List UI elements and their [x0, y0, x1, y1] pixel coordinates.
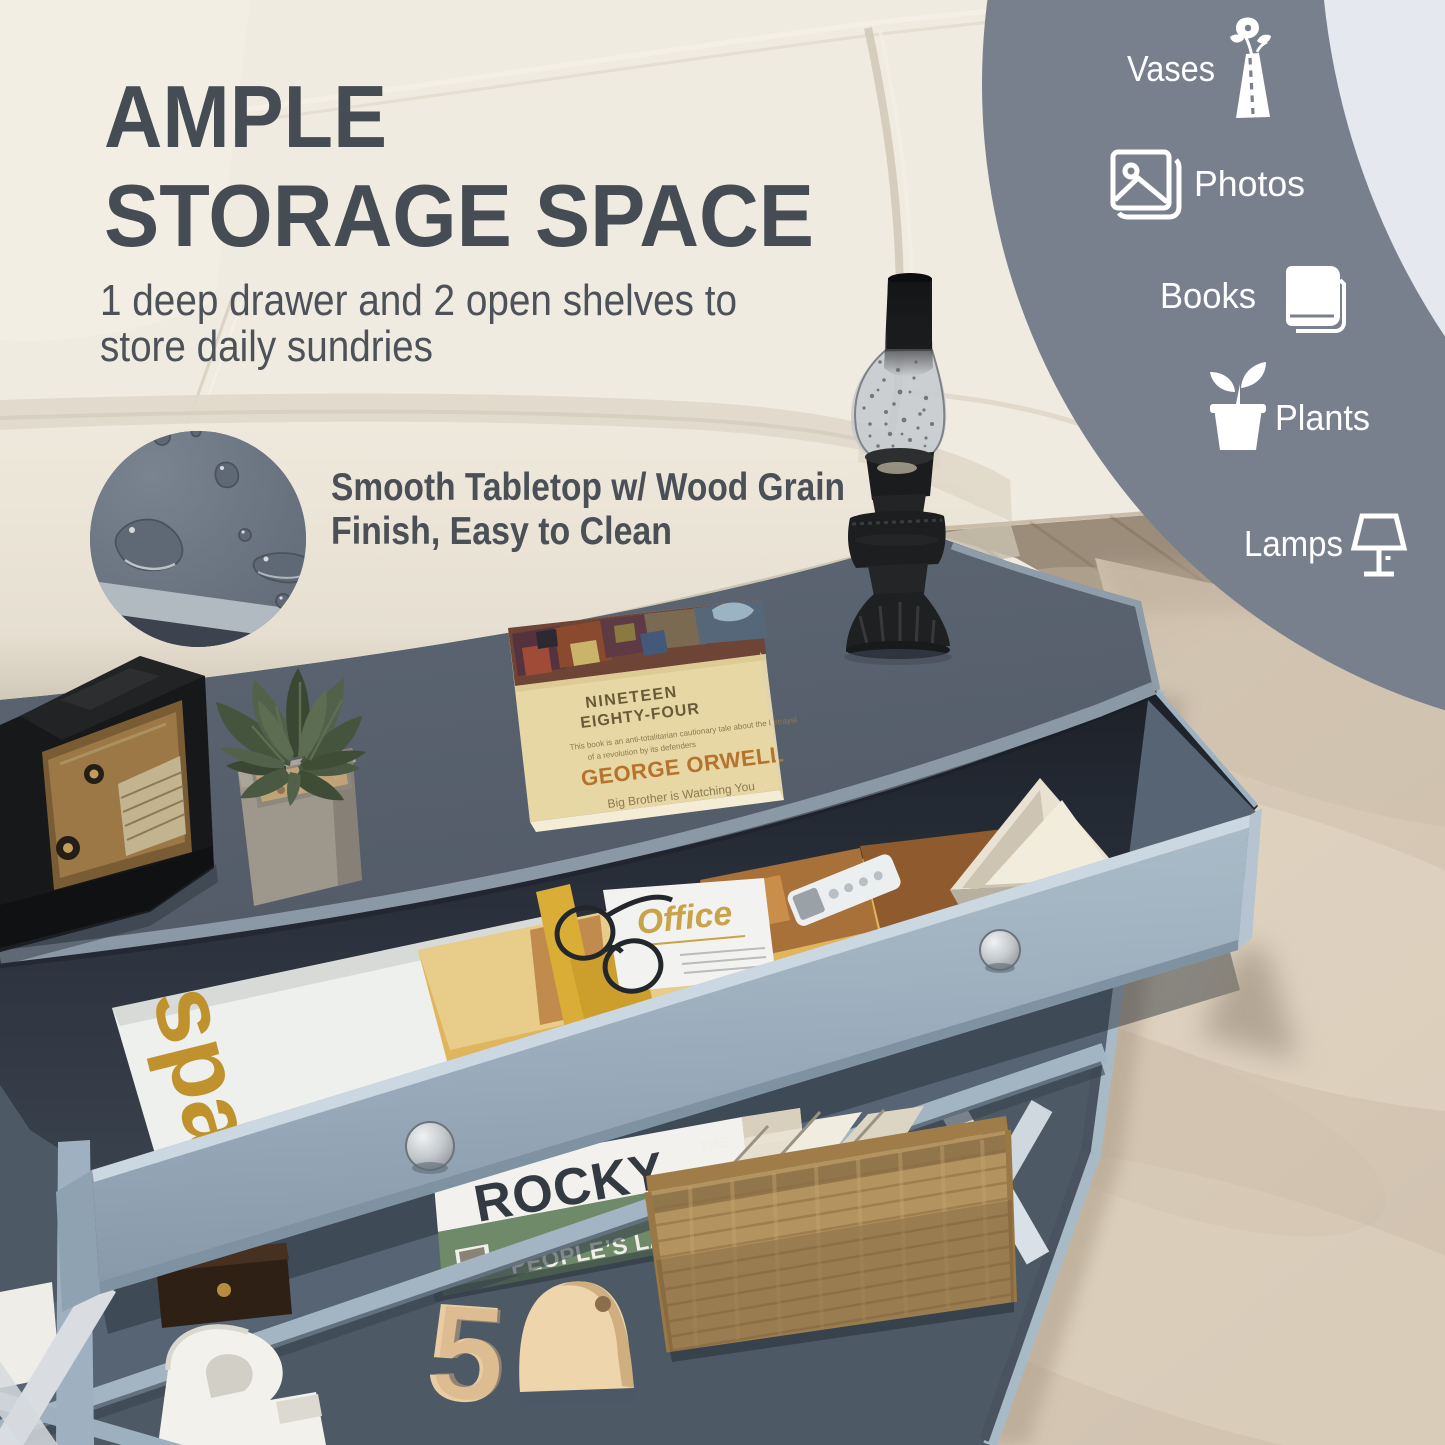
- svg-text:STORAGE SPACE: STORAGE SPACE: [104, 166, 814, 265]
- svg-text:Vases: Vases: [1127, 48, 1215, 89]
- svg-text:store daily sundries: store daily sundries: [100, 322, 433, 371]
- svg-text:Smooth Tabletop w/ Wood Grain: Smooth Tabletop w/ Wood Grain: [331, 466, 845, 509]
- svg-text:5: 5: [428, 1277, 511, 1429]
- svg-text:Books: Books: [1160, 275, 1256, 316]
- svg-text:Plants: Plants: [1275, 397, 1370, 438]
- svg-text:Photos: Photos: [1194, 163, 1305, 204]
- svg-text:Lamps: Lamps: [1244, 523, 1343, 564]
- svg-text:1 deep drawer and 2 open shelv: 1 deep drawer and 2 open shelves to: [100, 276, 737, 325]
- svg-text:Finish, Easy to Clean: Finish, Easy to Clean: [331, 510, 672, 553]
- svg-text:AMPLE: AMPLE: [104, 67, 387, 166]
